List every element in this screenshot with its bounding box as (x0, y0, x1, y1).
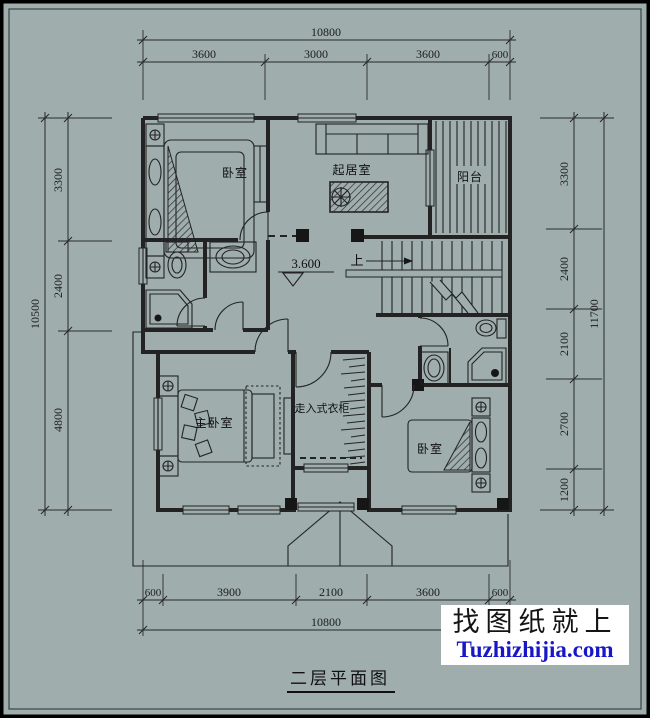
dim-left-segment-1: 2400 (51, 274, 65, 298)
floor-plan-page: 10800 3600 3000 3600 600 600 3900 2100 3… (0, 0, 650, 718)
stairs: 上 (346, 241, 502, 313)
watermark-site-link: Tuzhizhijia.com (457, 637, 614, 662)
dim-right-segment-3: 2700 (557, 412, 571, 436)
window (183, 506, 229, 514)
porch-beam (298, 503, 354, 511)
bathroom2-fixtures (421, 319, 506, 384)
door-master-bedroom (255, 319, 288, 352)
right-dimensions: 3300 2400 2100 2700 1200 11700 (540, 112, 614, 516)
wc-right-fixtures (210, 242, 256, 272)
dim-right-total: 11700 (587, 299, 601, 329)
window (402, 506, 456, 514)
plant-icon (331, 187, 351, 207)
wc-left-fixtures (146, 242, 192, 328)
toilet-icon (168, 252, 186, 278)
window (426, 150, 434, 206)
shower-icon (146, 290, 192, 328)
door-walk-in-closet (296, 352, 331, 387)
dim-right-segment-1: 2400 (557, 257, 571, 281)
roof-outline (133, 332, 508, 566)
left-extension-lines (38, 118, 112, 510)
column (497, 498, 509, 510)
dim-top-segment-3: 600 (492, 49, 509, 61)
rug-inner (252, 394, 274, 458)
dim-left-segment-2: 4800 (51, 408, 65, 432)
column (351, 229, 364, 242)
dresser-lamp (476, 448, 487, 468)
dim-bottom-segment-0: 600 (145, 587, 162, 599)
window (238, 506, 280, 514)
dim-right-segment-0: 3300 (557, 162, 571, 186)
washbasin-icon (428, 359, 440, 377)
dim-bottom-total: 10800 (311, 615, 341, 629)
stair-handrail (346, 270, 502, 277)
washbasin-icon (216, 246, 250, 268)
label-living-room: 起居室 (332, 162, 371, 177)
eave-line-right (392, 514, 508, 566)
pillow (195, 440, 212, 457)
right-extension-lines (540, 118, 614, 510)
left-dimensions: 3300 2400 4800 10500 (28, 112, 112, 516)
dim-top-segment-2: 3600 (416, 47, 440, 61)
dresser-lamp (149, 209, 161, 235)
pillow (181, 394, 197, 410)
shower-drain (491, 369, 499, 377)
tv-cabinet (284, 398, 292, 454)
shower-drain (155, 315, 162, 322)
dresser-lamp (149, 159, 161, 185)
column (285, 498, 297, 510)
dim-left-segment-0: 3300 (51, 168, 65, 192)
floor-plan-canvas: 10800 3600 3000 3600 600 600 3900 2100 3… (0, 0, 650, 718)
dim-right-segment-4: 1200 (557, 478, 571, 502)
dim-top-segment-1: 3000 (304, 47, 328, 61)
toilet-tank (497, 319, 506, 338)
watermark: 找图纸就上 Tuzhizhijia.com (441, 605, 629, 665)
wall-closet-right-bedroom2 (369, 352, 420, 510)
dim-top-total: 10800 (311, 25, 341, 39)
top-dimensions: 10800 3600 3000 3600 600 (137, 25, 516, 100)
watermark-slogan: 找图纸就上 (453, 607, 618, 637)
elevation-mark: 3.600 (278, 256, 334, 286)
door-bathroom2 (420, 318, 448, 346)
shower-icon (468, 348, 506, 384)
door-bedroom2 (382, 385, 414, 417)
bed-fold (168, 146, 198, 252)
label-bedroom2: 卧室 (417, 441, 443, 456)
bed-fold (444, 422, 470, 470)
window (304, 464, 348, 472)
sofa-cushions (326, 124, 418, 154)
stairs-up-label: 上 (350, 253, 363, 268)
dim-left-total: 10500 (28, 299, 42, 329)
dim-right-segment-2: 2100 (557, 332, 571, 356)
door-wc-right (215, 302, 243, 330)
toilet-icon (172, 257, 182, 273)
wall-master-closet-top-left (158, 352, 369, 510)
window (298, 114, 356, 122)
label-balcony: 阳台 (457, 169, 483, 184)
wall-balcony (364, 118, 510, 237)
label-master-bedroom: 主卧室 (194, 415, 233, 430)
column (296, 229, 309, 242)
page-title: 二层平面图 (290, 669, 390, 688)
washbasin-icon (222, 250, 244, 264)
dim-bottom-segment-2: 2100 (319, 585, 343, 599)
dim-bottom-segment-3: 3600 (416, 585, 440, 599)
elevation-value: 3.600 (291, 256, 320, 271)
dresser (472, 418, 490, 472)
column (357, 498, 369, 510)
dim-bottom-segment-4: 600 (492, 587, 509, 599)
window (158, 114, 254, 122)
dim-bottom-segment-1: 3900 (217, 585, 241, 599)
sofa (316, 124, 428, 154)
toilet-icon (480, 324, 492, 333)
elevation-triangle-icon (283, 273, 303, 286)
label-bedroom1: 卧室 (222, 165, 248, 180)
label-walk-in-closet: 走入式衣柜 (295, 401, 350, 415)
rug (246, 386, 280, 466)
toilet-icon (476, 320, 496, 336)
dresser-lamp (476, 422, 487, 442)
drawing-title: 二层平面图 (287, 669, 395, 692)
dim-top-segment-0: 3600 (192, 47, 216, 61)
